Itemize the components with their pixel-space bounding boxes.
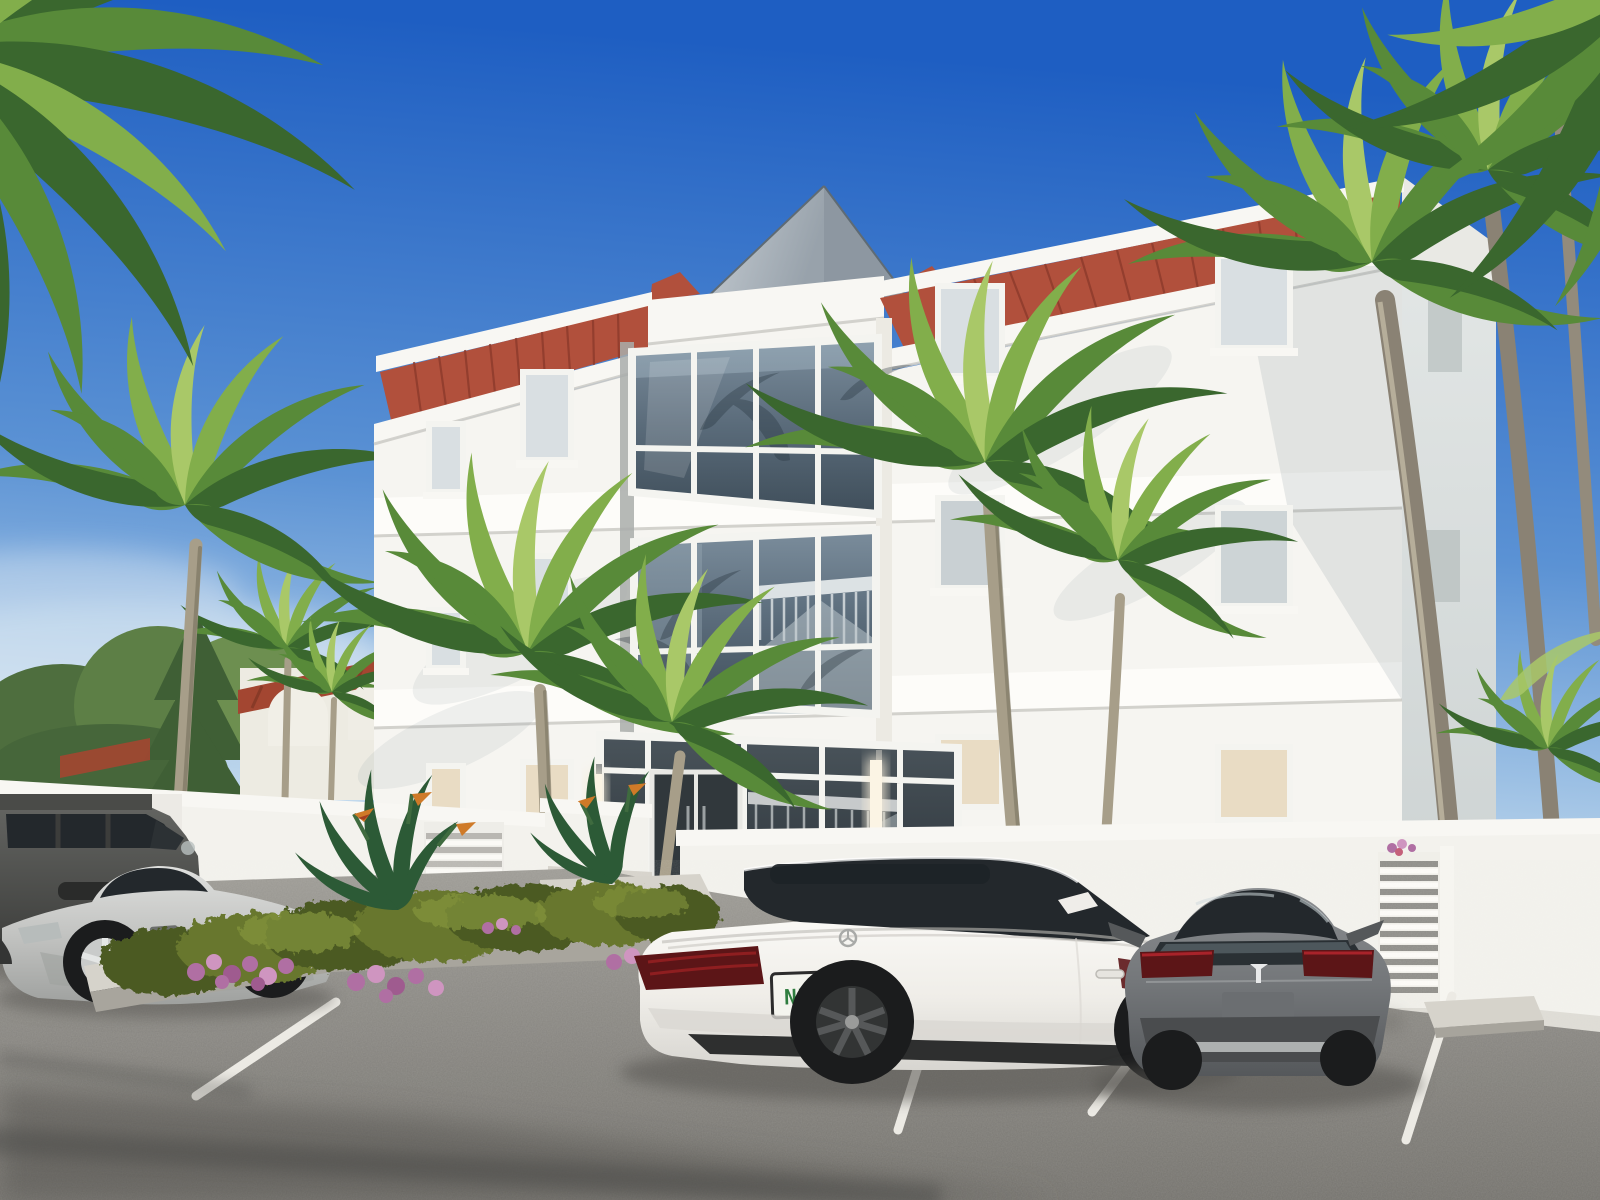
window xyxy=(1218,747,1290,820)
tesla-diffuser-trim xyxy=(1196,1042,1326,1052)
suv-headlight xyxy=(181,841,195,855)
window xyxy=(1210,256,1298,356)
sedan-door-handle xyxy=(1096,970,1124,978)
rendering-canvas: N7 2U xyxy=(0,0,1600,1200)
sedan-sunroof xyxy=(770,864,990,884)
window xyxy=(423,424,469,499)
window xyxy=(1210,508,1298,614)
tesla-wheel-left xyxy=(1142,1030,1202,1090)
suv-roof xyxy=(0,794,152,810)
window xyxy=(516,372,578,468)
tesla-wheel-right xyxy=(1320,1030,1376,1086)
scene-rendering: N7 2U xyxy=(0,0,1600,1200)
